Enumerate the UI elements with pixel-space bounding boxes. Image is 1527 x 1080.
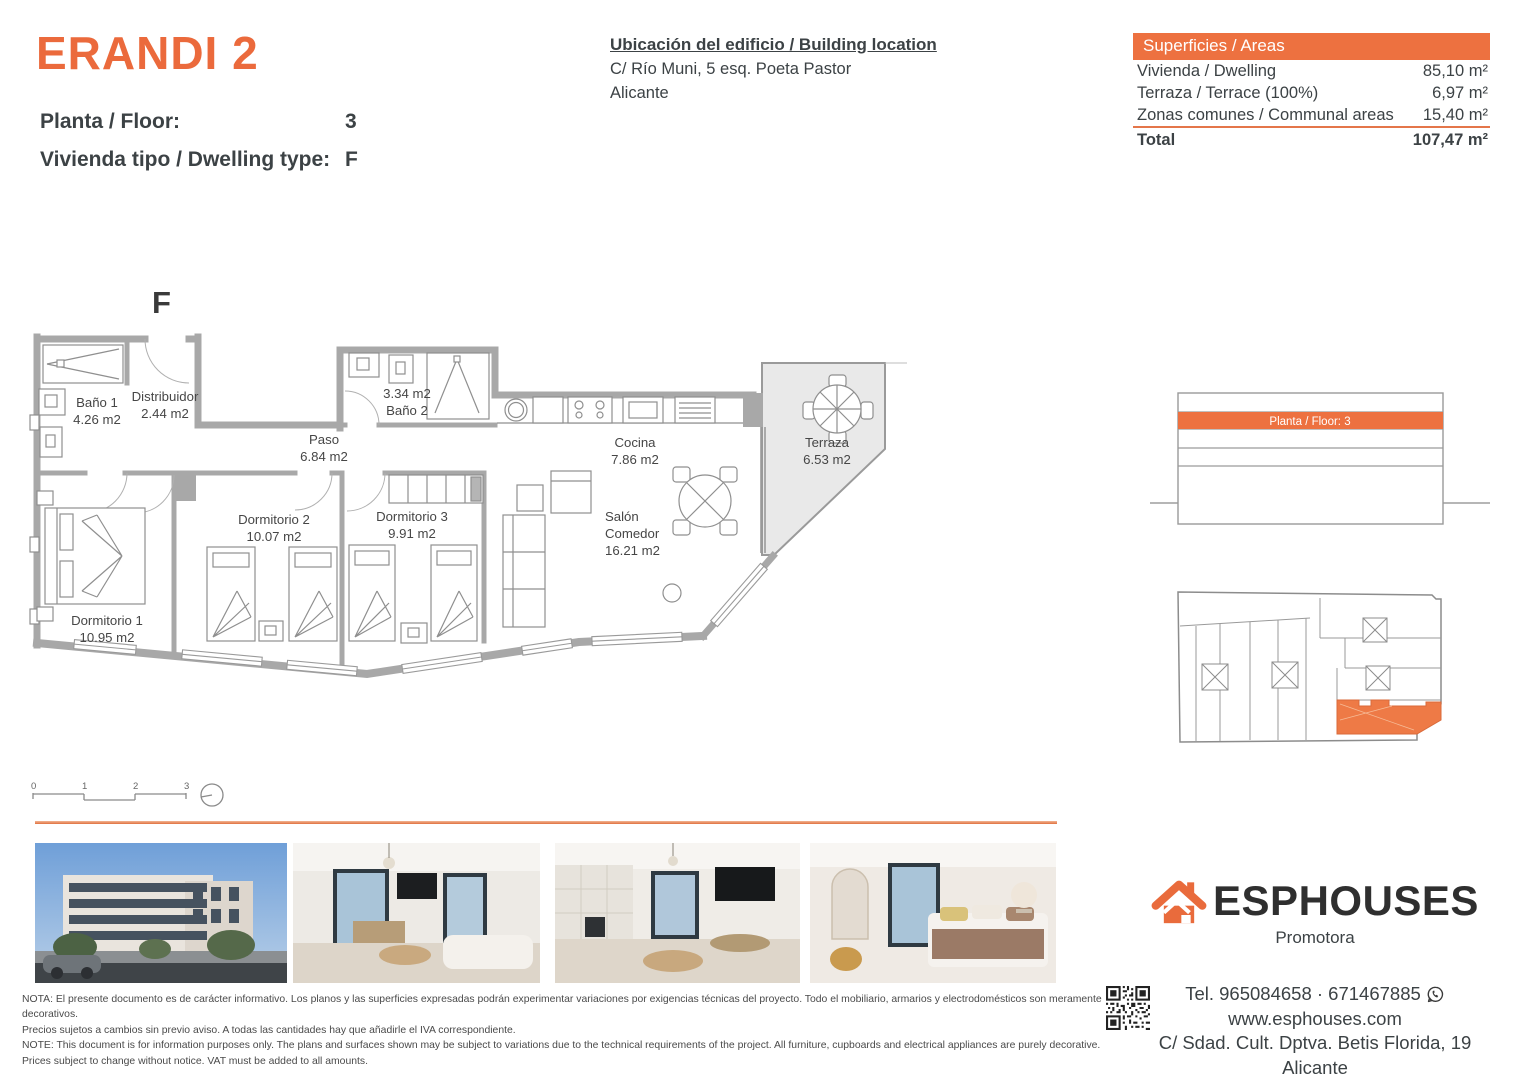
floor-lamp bbox=[663, 584, 681, 602]
areas-value: 85,10 m² bbox=[1423, 62, 1488, 81]
room-area: 3.34 m2 bbox=[383, 386, 431, 401]
scale-tick-labels: 0 1 2 3 bbox=[31, 781, 189, 792]
brochure-page: { "header": { "title": "ERANDI 2", "floo… bbox=[0, 0, 1527, 1080]
areas-label: Terraza / Terrace (100%) bbox=[1137, 84, 1318, 103]
svg-text:1: 1 bbox=[82, 781, 87, 792]
room-area: 16.21 m2 bbox=[605, 543, 660, 558]
bed-single bbox=[207, 547, 255, 641]
sofa bbox=[503, 515, 545, 627]
wall-pier bbox=[174, 473, 196, 501]
room-area: 10.95 m2 bbox=[80, 630, 135, 645]
room-label: Comedor bbox=[605, 526, 660, 541]
disclaimer: NOTA: El presente documento es de caráct… bbox=[22, 992, 1107, 1069]
bed-single bbox=[289, 547, 337, 641]
areas-value: 15,40 m² bbox=[1423, 106, 1488, 125]
room-label: Paso bbox=[309, 432, 339, 447]
scale-bar: 0 1 2 3 bbox=[28, 780, 238, 812]
photo-building-exterior bbox=[35, 843, 287, 983]
dwelling-type-value: F bbox=[345, 148, 358, 172]
photo-kitchen bbox=[555, 843, 800, 983]
location-street: C/ Río Muni, 5 esq. Poeta Pastor bbox=[610, 57, 937, 81]
photo-bedroom bbox=[810, 843, 1056, 983]
bed-single bbox=[431, 545, 477, 641]
room-label: Dormitorio 2 bbox=[238, 512, 310, 527]
room-label: Salón bbox=[605, 509, 639, 524]
bed-double bbox=[45, 508, 145, 604]
side-table bbox=[517, 485, 543, 511]
floor-label: Planta / Floor: bbox=[40, 110, 345, 134]
areas-row-total: Total 107,47 m² bbox=[1133, 128, 1490, 151]
disclaimer-line: Prices subject to change without notice.… bbox=[22, 1054, 1107, 1069]
svg-text:0: 0 bbox=[31, 781, 36, 792]
svg-text:2: 2 bbox=[133, 781, 138, 792]
disclaimer-line: NOTA: El presente documento es de caráct… bbox=[22, 992, 1107, 1023]
disclaimer-line: NOTE: This document is for information p… bbox=[22, 1038, 1107, 1053]
brand-logo: ESPHOUSES bbox=[1150, 876, 1480, 926]
room-label: Baño 2 bbox=[386, 403, 428, 418]
office-address: C/ Sdad. Cult. Dptva. Betis Florida, 19 bbox=[1115, 1031, 1515, 1056]
room-area: 6.53 m2 bbox=[803, 452, 851, 467]
areas-total-value: 107,47 m² bbox=[1413, 131, 1488, 150]
areas-label: Zonas comunes / Communal areas bbox=[1137, 106, 1394, 125]
shower-1 bbox=[43, 345, 123, 383]
office-city: Alicante bbox=[1115, 1056, 1515, 1080]
room-area: 2.44 m2 bbox=[141, 406, 189, 421]
building-elevation: Planta / Floor: 3 bbox=[1150, 385, 1490, 535]
floor-plan: Baño 1 4.26 m2 Distribuidor 2.44 m2 Paso… bbox=[27, 325, 907, 693]
areas-row-terrace: Terraza / Terrace (100%) 6,97 m² bbox=[1133, 82, 1490, 104]
whatsapp-icon bbox=[1426, 985, 1445, 1004]
wardrobe bbox=[389, 475, 483, 503]
dining-table bbox=[673, 467, 737, 535]
phone-line: Tel. 965084658 · 671467885 bbox=[1185, 982, 1445, 1007]
disclaimer-line: Precios sujetos a cambios sin previo avi… bbox=[22, 1023, 1107, 1038]
kitchen-counter bbox=[497, 397, 743, 423]
room-area: 6.84 m2 bbox=[300, 449, 348, 464]
north-arrow-icon bbox=[201, 784, 223, 806]
bed-single bbox=[349, 545, 395, 641]
areas-value: 6,97 m² bbox=[1432, 84, 1488, 103]
room-label: Dormitorio 1 bbox=[71, 613, 143, 628]
divider-line bbox=[35, 821, 1057, 824]
house-logo-icon bbox=[1151, 876, 1207, 926]
room-label: Terraza bbox=[805, 435, 850, 450]
room-area: 7.86 m2 bbox=[611, 452, 659, 467]
contact-block: Tel. 965084658 · 671467885 www.esphouses… bbox=[1115, 982, 1515, 1080]
room-area: 4.26 m2 bbox=[73, 412, 121, 427]
areas-total-label: Total bbox=[1137, 131, 1175, 150]
floor-value: 3 bbox=[345, 110, 357, 134]
dwelling-type-label: Vivienda tipo / Dwelling type: bbox=[40, 148, 345, 172]
room-area: 9.91 m2 bbox=[388, 526, 436, 541]
brand-name: ESPHOUSES bbox=[1213, 877, 1479, 925]
areas-header: Superficies / Areas bbox=[1133, 33, 1490, 60]
dwelling-type-row: Vivienda tipo / Dwelling type: F bbox=[40, 148, 460, 172]
room-label: Baño 1 bbox=[76, 395, 118, 410]
highlighted-floor-label: Planta / Floor: 3 bbox=[1269, 416, 1350, 428]
areas-table: Superficies / Areas Vivienda / Dwelling … bbox=[1133, 33, 1490, 151]
armchair bbox=[551, 471, 591, 513]
phone-numbers: Tel. 965084658 · 671467885 bbox=[1185, 982, 1421, 1007]
site-plan bbox=[1160, 578, 1490, 770]
areas-label: Vivienda / Dwelling bbox=[1137, 62, 1276, 81]
room-label: Cocina bbox=[614, 435, 656, 450]
qr-code bbox=[1106, 986, 1150, 1030]
location-title: Ubicación del edificio / Building locati… bbox=[610, 33, 937, 57]
photo-living-room bbox=[293, 843, 540, 983]
pillar bbox=[743, 393, 763, 427]
floor-row: Planta / Floor: 3 bbox=[40, 110, 460, 134]
room-label: Distribuidor bbox=[132, 389, 199, 404]
shower-2 bbox=[427, 353, 489, 419]
areas-row-dwelling: Vivienda / Dwelling 85,10 m² bbox=[1133, 60, 1490, 82]
building-location: Ubicación del edificio / Building locati… bbox=[610, 33, 937, 105]
project-title: ERANDI 2 bbox=[36, 26, 259, 80]
room-area: 10.07 m2 bbox=[247, 529, 302, 544]
brand-subtitle: Promotora bbox=[1150, 928, 1480, 948]
plan-type-letter: F bbox=[152, 285, 171, 321]
location-city: Alicante bbox=[610, 81, 937, 105]
areas-row-communal: Zonas comunes / Communal areas 15,40 m² bbox=[1133, 104, 1490, 128]
room-label: Dormitorio 3 bbox=[376, 509, 448, 524]
svg-text:3: 3 bbox=[184, 781, 189, 792]
website: www.esphouses.com bbox=[1115, 1007, 1515, 1032]
